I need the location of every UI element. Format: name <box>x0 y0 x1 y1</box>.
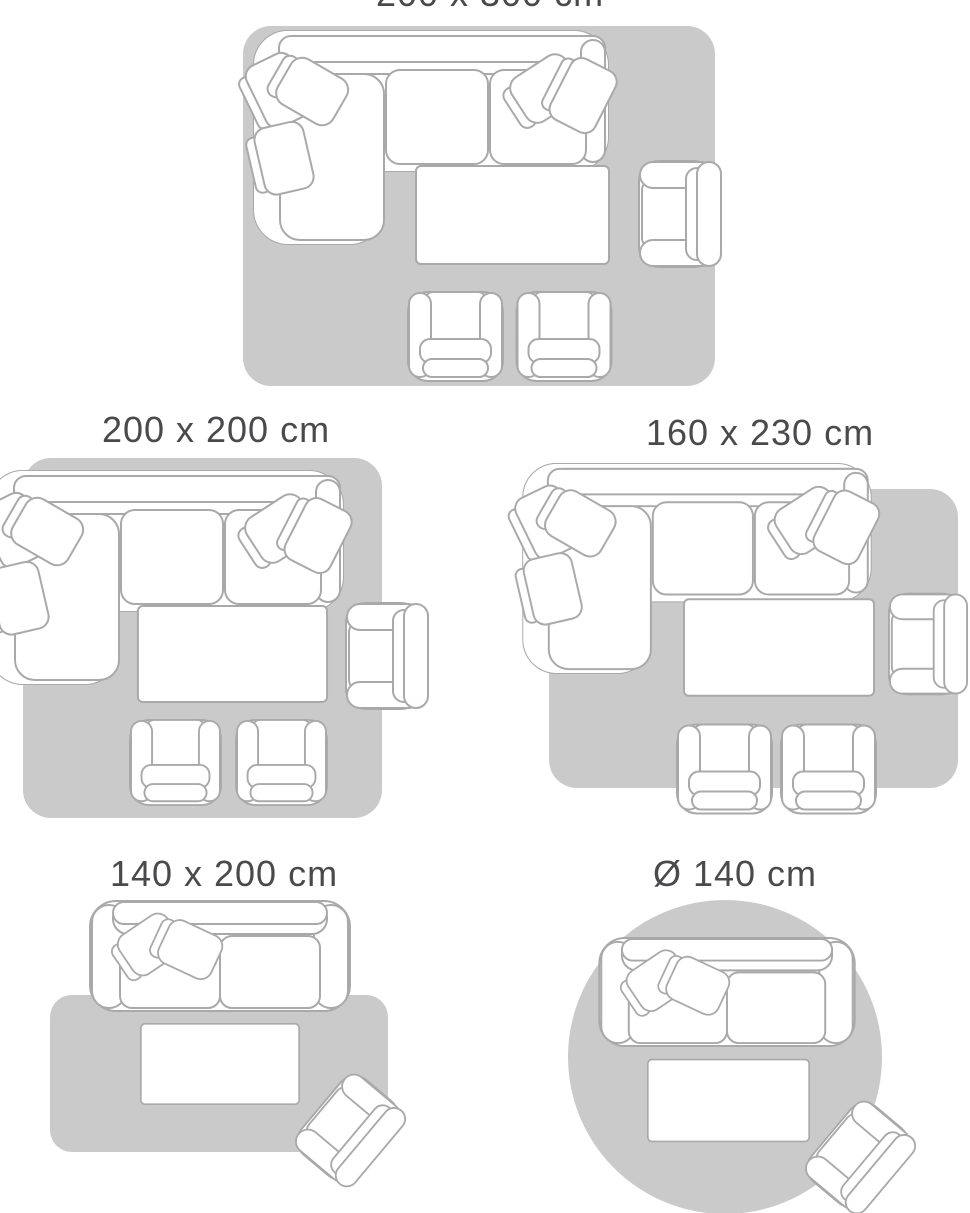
scene-200x200 <box>0 458 428 818</box>
coffee-table <box>416 166 609 264</box>
club-chair <box>677 725 772 814</box>
floorplan-illustrations <box>0 0 970 1213</box>
coffee-table <box>684 599 874 695</box>
club-chair <box>236 720 327 805</box>
club-chair <box>781 725 876 814</box>
coffee-table <box>138 606 327 702</box>
scene-diameter-140 <box>568 900 920 1213</box>
armchair <box>889 594 967 695</box>
armchair <box>639 161 721 267</box>
scene-200x300 <box>234 26 721 386</box>
coffee-table <box>648 1060 809 1142</box>
scene-160x230 <box>503 464 967 814</box>
club-chair <box>517 292 612 381</box>
scene-140x200 <box>50 901 410 1192</box>
rug-size-guide: 200 x 300 cm 200 x 200 cm 160 x 230 cm 1… <box>0 0 970 1213</box>
club-chair <box>408 292 503 381</box>
two-seat-sofa <box>599 938 854 1046</box>
coffee-table <box>141 1024 299 1104</box>
club-chair <box>130 720 221 805</box>
armchair <box>346 603 428 709</box>
two-seat-sofa <box>90 901 350 1011</box>
